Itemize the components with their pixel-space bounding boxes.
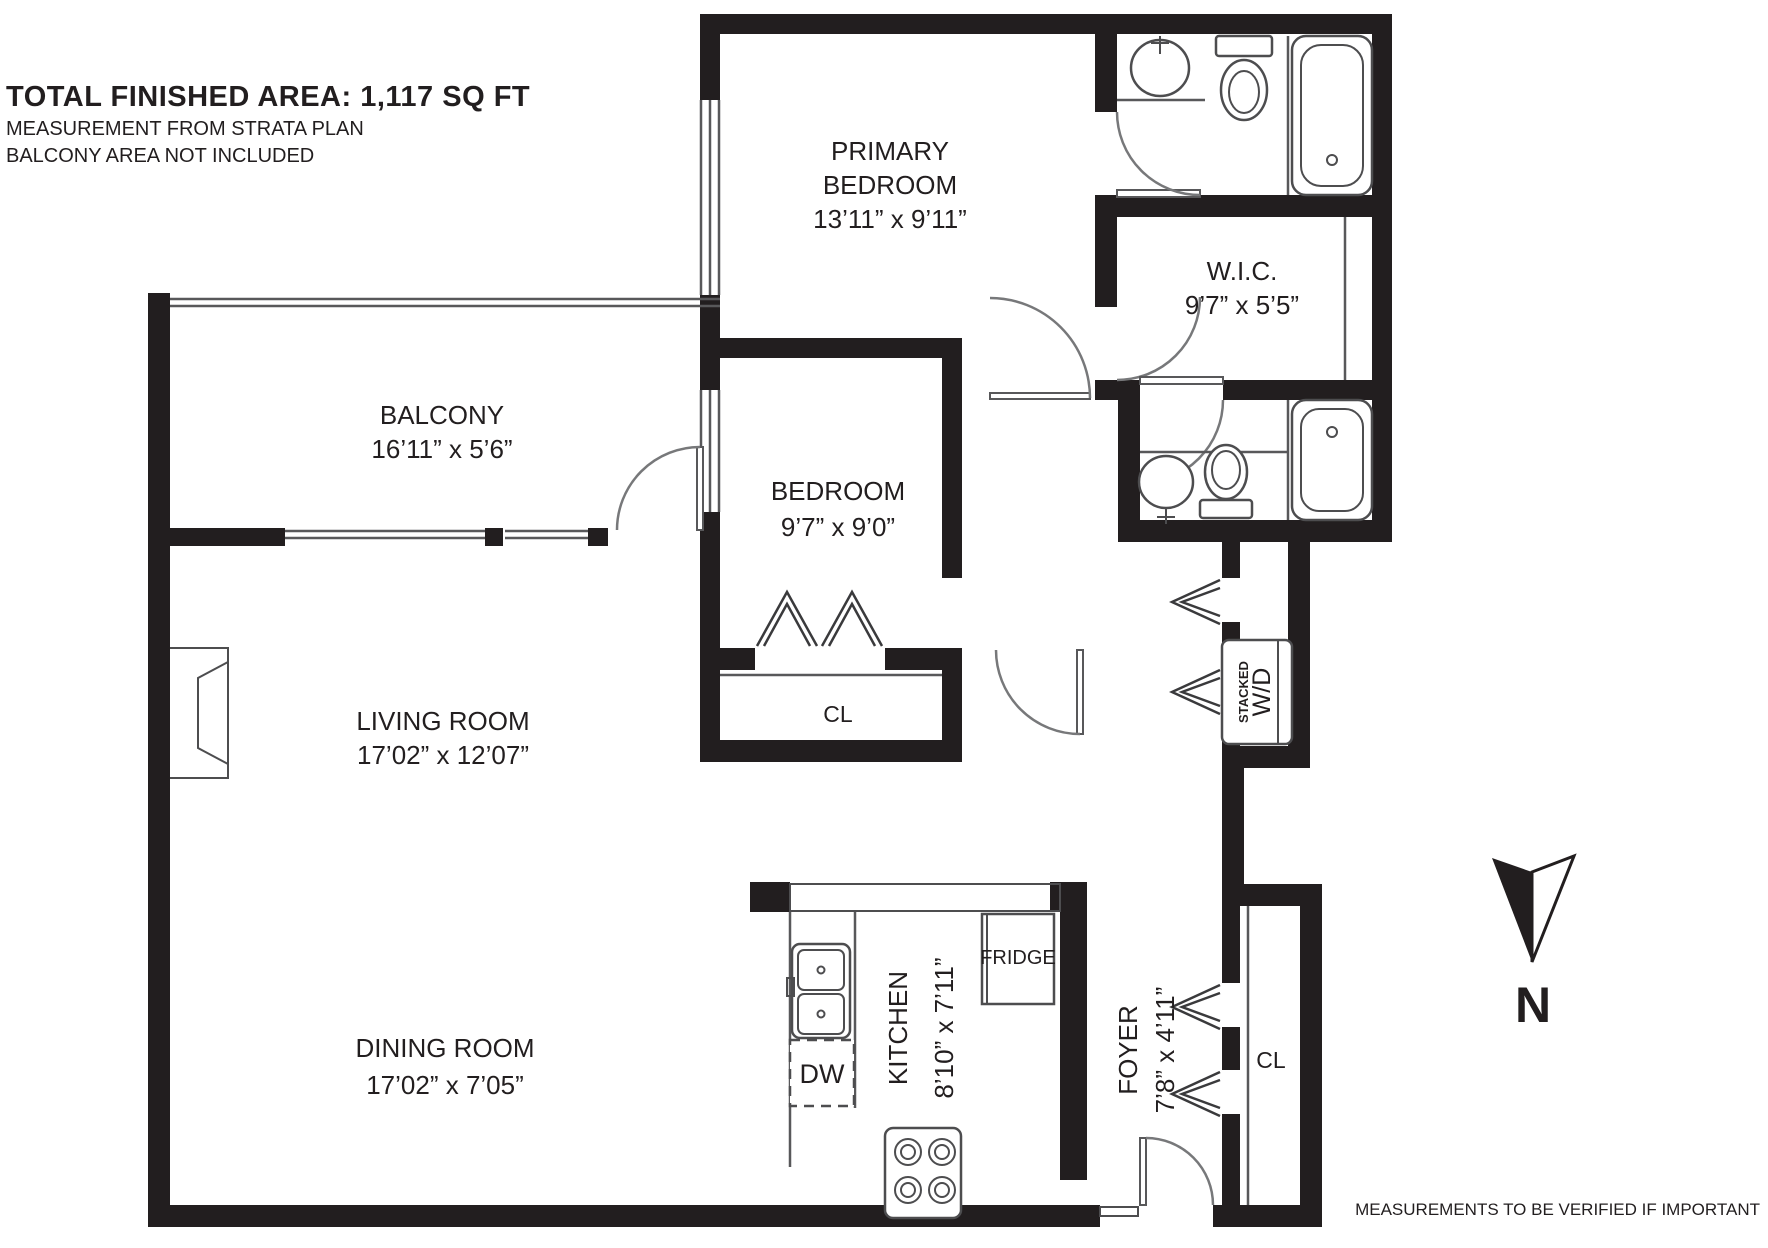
washer-dryer-label: W/D [1248, 668, 1276, 717]
wall-segment [700, 14, 1392, 34]
wall-segment [1095, 195, 1392, 217]
foyer-label: FOYER [1113, 1005, 1143, 1095]
wall-segment [1095, 217, 1117, 307]
ensuite-fixtures [1139, 400, 1372, 524]
wall-segment [1222, 1027, 1240, 1070]
floor-plan: TOTAL FINISHED AREA: 1,117 SQ FT MEASURE… [0, 0, 1768, 1248]
living-room-dims: 17’02” x 12’07” [357, 740, 529, 770]
bedroom-closet-label: CL [823, 701, 853, 727]
bedroom-dims: 9’7” x 9’0” [781, 512, 895, 542]
balcony-label: BALCONY [380, 400, 504, 430]
kitchen-dims: 8’10” x 7’11” [929, 957, 959, 1098]
wic-label: W.I.C. [1207, 256, 1278, 286]
washer-dryer-box: STACKED W/D [1222, 640, 1292, 744]
bedroom-label: BEDROOM [771, 476, 905, 506]
wall-segment [700, 648, 755, 670]
fridge-label: FRIDGE [980, 947, 1056, 969]
wall-segment [1050, 882, 1087, 912]
wall-segment [1222, 746, 1244, 906]
entry-door [1140, 1138, 1213, 1205]
hall-closet-bifold-icon [1172, 580, 1220, 714]
primary-bedroom-door [990, 298, 1090, 399]
bathtub-icon [1292, 400, 1372, 520]
wall-segment [1060, 912, 1087, 1180]
wall-segment [700, 14, 720, 100]
wall-segment [1222, 542, 1240, 578]
stove-icon [885, 1128, 961, 1218]
wall-segment [1118, 520, 1392, 542]
foyer-closet-label: CL [1256, 1047, 1286, 1073]
wall-segment [750, 882, 790, 912]
wall-segment [1222, 1114, 1240, 1205]
sink-icon [1131, 36, 1189, 96]
wall-segment [1222, 906, 1240, 983]
dishwasher-label: DW [800, 1059, 845, 1089]
bedroom-closet-bifold-icon [757, 592, 882, 646]
wall-segment [1223, 380, 1392, 400]
wall-segment [1118, 400, 1140, 520]
wall-segment [1095, 14, 1117, 112]
kitchen-sink-icon [787, 944, 850, 1038]
wall-segment [942, 338, 962, 578]
fireplace-icon [170, 648, 228, 778]
living-room-window [285, 531, 588, 538]
balcony-door [617, 447, 703, 530]
bathroom-door [1117, 112, 1200, 197]
wall-segment [1240, 746, 1310, 768]
primary-bedroom-label: PRIMARY [831, 136, 949, 166]
wall-segment [170, 528, 285, 546]
wall-segment [588, 528, 608, 546]
compass-north-icon: N [1492, 856, 1574, 1033]
sink-icon [1139, 456, 1193, 524]
balcony-dims: 16’11” x 5’6” [371, 434, 512, 464]
wall-segment [148, 293, 170, 1227]
entry-sidelite [1100, 1207, 1138, 1216]
kitchen-passthrough-counter [790, 884, 1060, 911]
windows [170, 100, 1138, 1216]
primary-bedroom-dims: 13’11” x 9’11” [813, 204, 967, 234]
bedroom-door [996, 650, 1083, 734]
toilet-icon [1200, 445, 1252, 518]
wall-segment [1095, 380, 1140, 400]
bathroom-fixtures [1131, 36, 1372, 195]
wall-segment [1372, 14, 1392, 542]
toilet-icon [1216, 36, 1272, 120]
dining-room-label: DINING ROOM [355, 1033, 534, 1063]
primary-bedroom-label2: BEDROOM [823, 170, 957, 200]
wall-segment [485, 528, 503, 546]
bathtub-icon [1292, 36, 1372, 195]
dining-room-dims: 17’02” x 7’05” [366, 1070, 524, 1100]
floor-plan-drawing: STACKED W/D N PRIMARY BEDROOM 13’11” x 9… [0, 0, 1768, 1248]
wic-dims: 9’7” x 5’5” [1185, 290, 1299, 320]
wall-segment [1300, 884, 1322, 1227]
balcony-railing [170, 299, 720, 306]
foyer-dims: 7’8” x 4’11” [1150, 987, 1180, 1114]
wall-segment [700, 338, 962, 358]
living-room-label: LIVING ROOM [356, 706, 529, 736]
wall-segment [885, 648, 962, 670]
north-label: N [1515, 977, 1551, 1033]
primary-bedroom-window [700, 100, 720, 295]
wall-segment [700, 512, 720, 762]
wall-segment [700, 740, 962, 762]
kitchen-label: KITCHEN [883, 971, 913, 1085]
